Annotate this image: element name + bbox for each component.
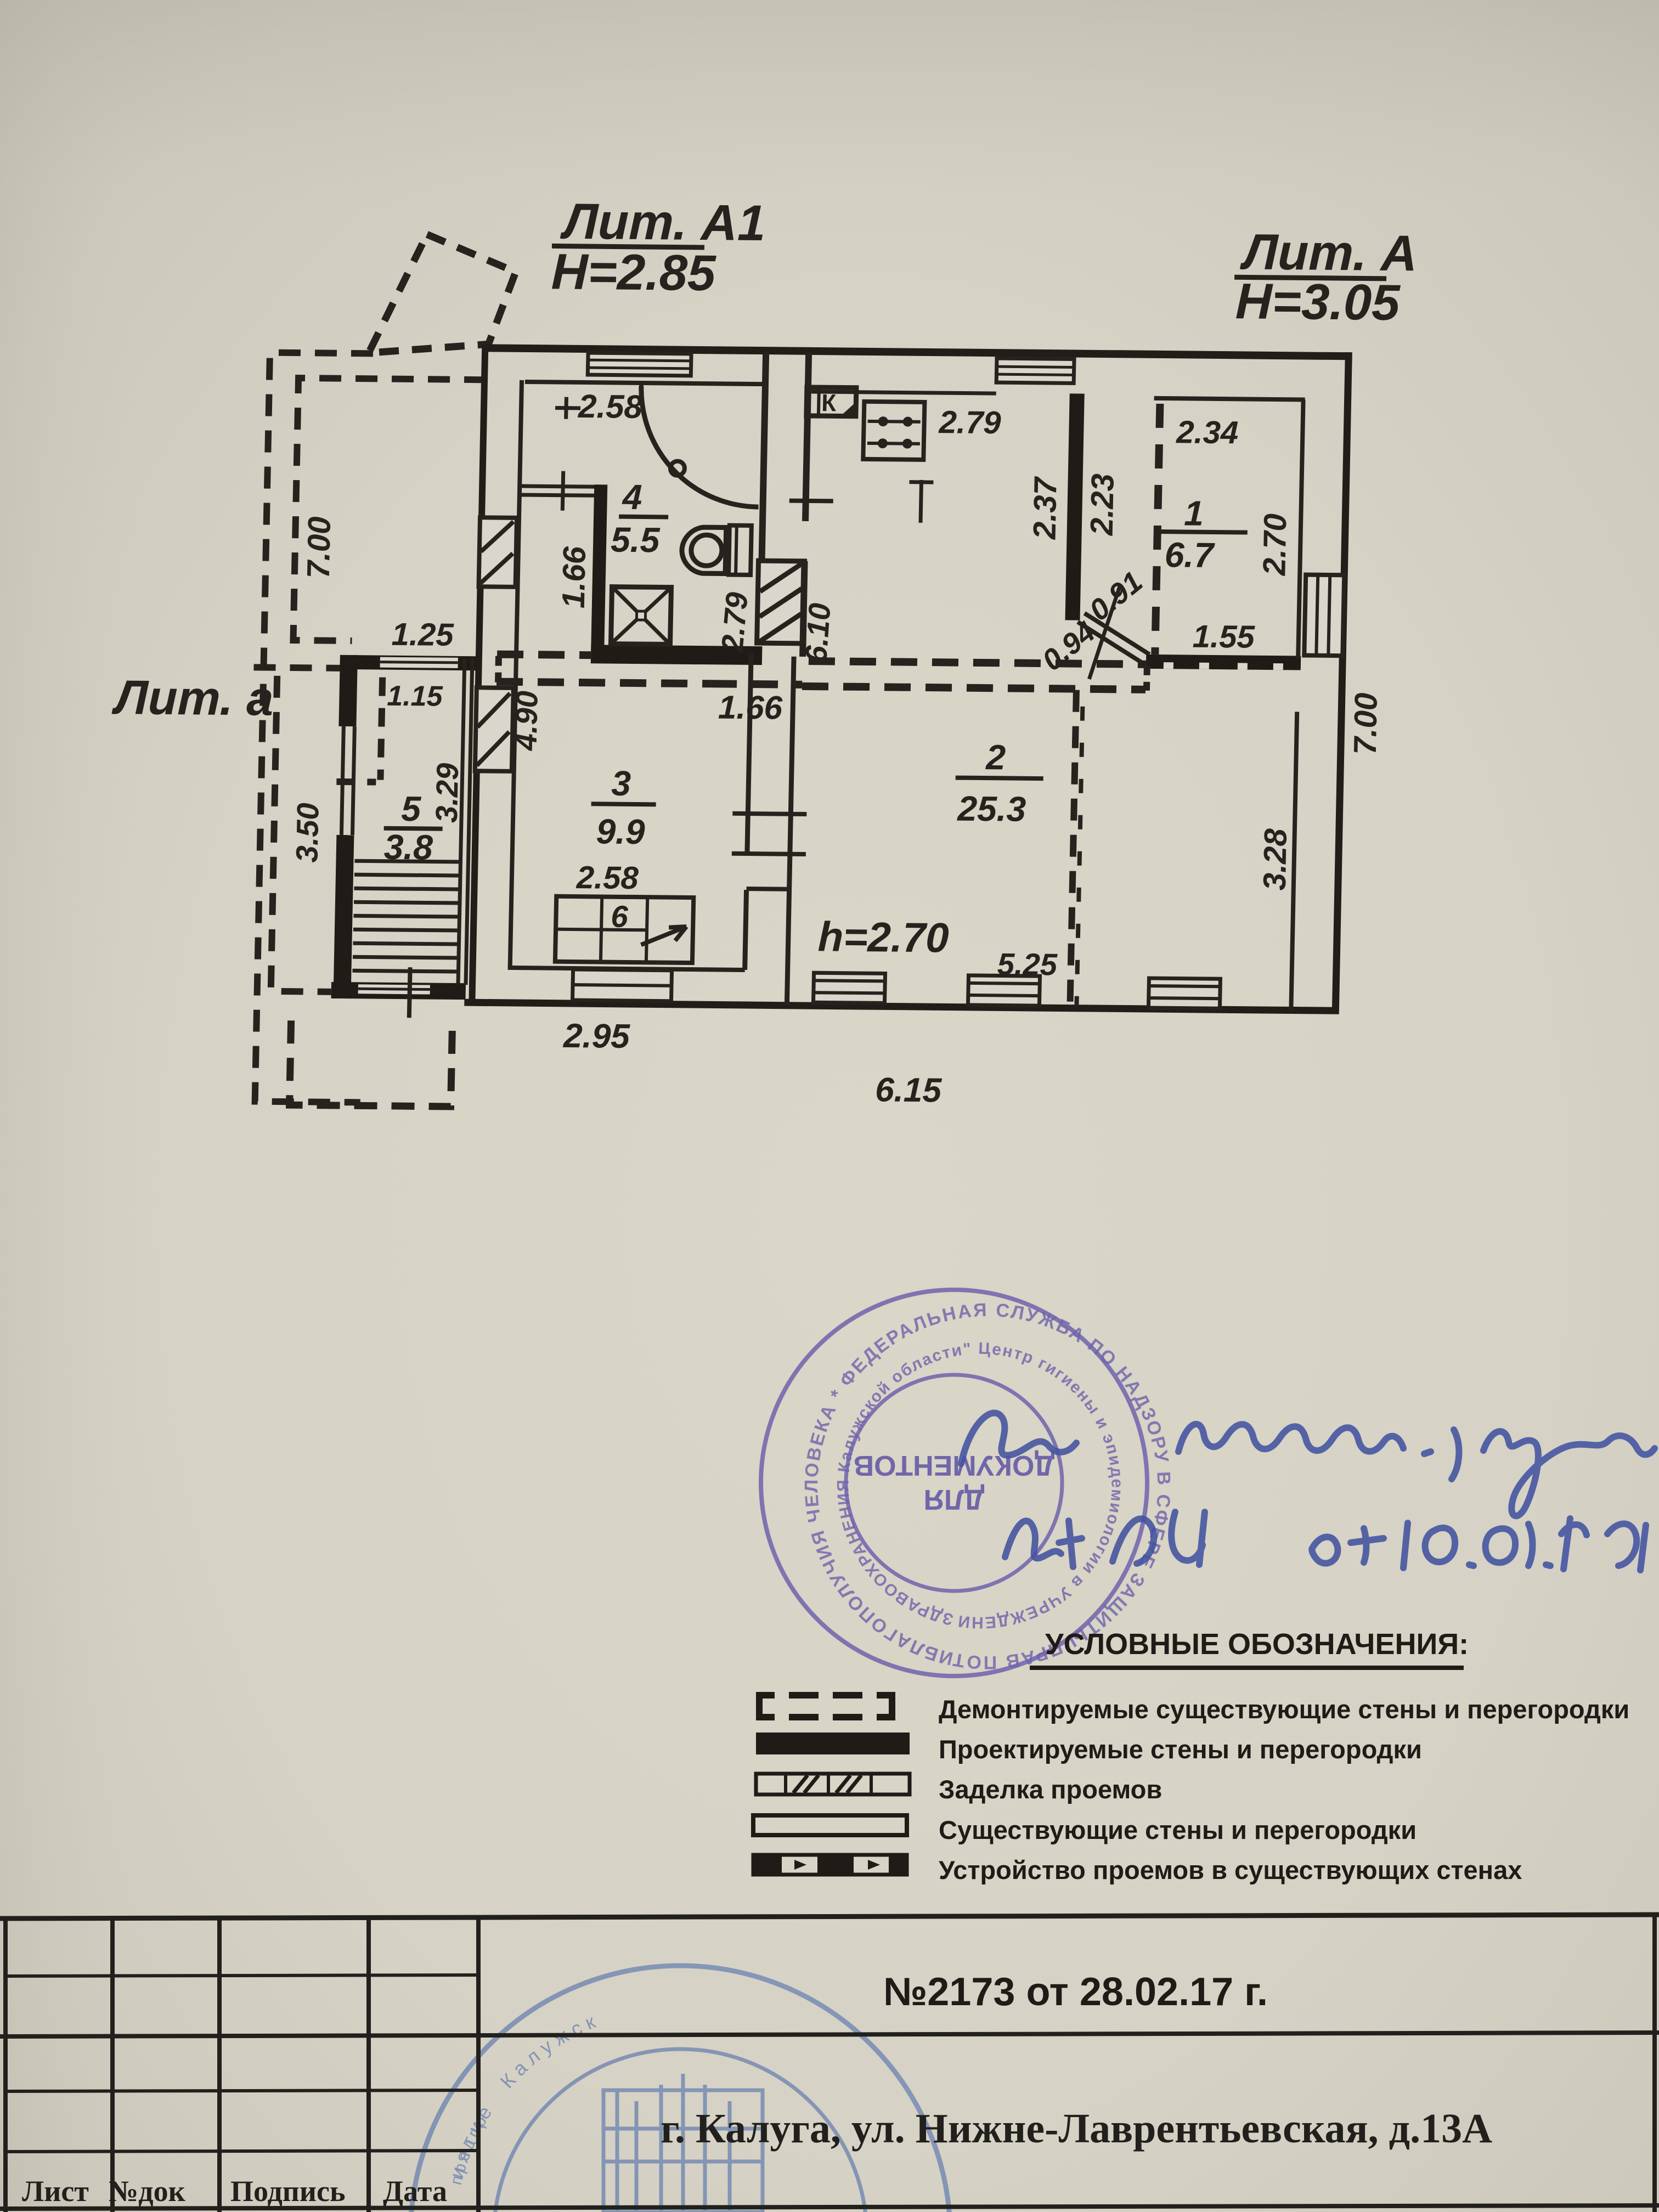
svg-text:3.29: 3.29: [429, 763, 465, 823]
svg-text:3.50: 3.50: [289, 803, 325, 863]
svg-text:1: 1: [1184, 493, 1204, 533]
svg-text:6.10: 6.10: [798, 602, 837, 664]
svg-text:ДЛЯ: ДЛЯ: [924, 1483, 985, 1515]
svg-text:Дата: Дата: [383, 2175, 447, 2208]
svg-text:Лит. а: Лит. а: [111, 670, 274, 726]
svg-text:5: 5: [401, 789, 422, 828]
svg-text:Демонтируемые существующие сте: Демонтируемые существующие стены и перег…: [939, 1695, 1629, 1724]
svg-text:№док: №док: [109, 2175, 186, 2208]
svg-text:H=2.85: H=2.85: [551, 244, 717, 301]
svg-text:25.3: 25.3: [957, 789, 1026, 829]
svg-text:6: 6: [611, 899, 629, 934]
svg-text:2.23: 2.23: [1084, 473, 1121, 536]
svg-text:9.9: 9.9: [596, 811, 646, 851]
svg-text:Лист: Лист: [22, 2175, 89, 2208]
svg-text:7.00: 7.00: [1347, 692, 1384, 754]
svg-text:h=2.70: h=2.70: [817, 913, 949, 961]
svg-text:2.34: 2.34: [1176, 414, 1239, 450]
svg-text:1.55: 1.55: [1192, 619, 1255, 655]
svg-text:H=3.05: H=3.05: [1235, 273, 1401, 331]
svg-text:2.37: 2.37: [1026, 476, 1063, 540]
svg-text:3.28: 3.28: [1257, 828, 1294, 890]
svg-text:3: 3: [611, 764, 631, 803]
svg-text:2.79: 2.79: [938, 404, 1001, 441]
svg-text:Подпись: Подпись: [230, 2175, 346, 2208]
svg-text:2.70: 2.70: [1256, 513, 1293, 576]
svg-text:4.90: 4.90: [509, 691, 544, 752]
svg-text:Устройство проемов в существую: Устройство проемов в существующих стенах: [939, 1855, 1522, 1884]
svg-text:2.79: 2.79: [714, 591, 754, 654]
svg-text:Существующие стены и перегород: Существующие стены и перегородки: [939, 1815, 1417, 1844]
svg-text:2.95: 2.95: [562, 1017, 631, 1056]
svg-text:Лит. А1: Лит. А1: [560, 194, 766, 252]
svg-text:Заделка проемов: Заделка проемов: [939, 1775, 1162, 1804]
svg-text:6.7: 6.7: [1164, 535, 1216, 575]
svg-text:г. Калуга, ул. Нижне-Лаврентье: г. Калуга, ул. Нижне-Лаврентьевская, д.1…: [661, 2106, 1492, 2152]
svg-text:Проектируемые стены и перегоро: Проектируемые стены и перегородки: [939, 1735, 1422, 1764]
svg-text:1.15: 1.15: [387, 680, 443, 713]
svg-text:6.15: 6.15: [875, 1071, 943, 1109]
svg-text:7.00: 7.00: [301, 516, 337, 578]
svg-text:Лит. А: Лит. А: [1239, 224, 1418, 281]
svg-text:ДОКУМЕНТОВ: ДОКУМЕНТОВ: [854, 1449, 1055, 1481]
svg-text:1.66: 1.66: [556, 546, 592, 608]
svg-text:№2173 от 28.02.17 г.: №2173 от 28.02.17 г.: [883, 1970, 1268, 2014]
svg-text:К: К: [821, 390, 837, 416]
svg-text:2.58: 2.58: [575, 860, 639, 896]
svg-text:2.58: 2.58: [577, 388, 643, 425]
svg-text:2: 2: [985, 737, 1006, 777]
svg-text:1.25: 1.25: [391, 617, 454, 653]
svg-text:4: 4: [621, 477, 642, 517]
svg-text:УСЛОВНЫЕ ОБОЗНАЧЕНИЯ:: УСЛОВНЫЕ ОБОЗНАЧЕНИЯ:: [1045, 1628, 1469, 1661]
svg-text:5.5: 5.5: [611, 520, 661, 560]
